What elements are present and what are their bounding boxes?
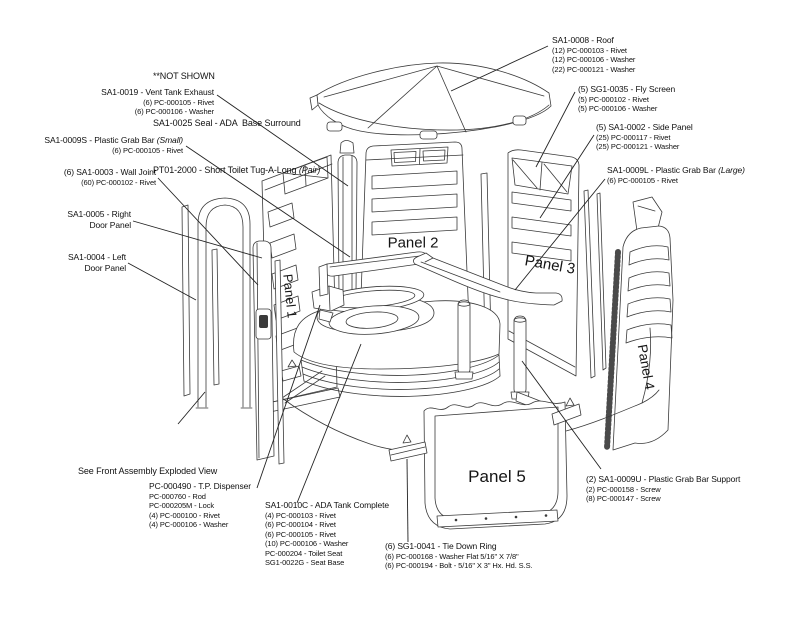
label-fly-screen: (5) SG1-0035 - Fly Screen(5) PC-000102 -…	[578, 84, 675, 114]
label-title: SA1-0008 - Roof	[552, 35, 635, 46]
label-title: SA1-0010C - ADA Tank Complete	[265, 500, 389, 511]
label-title: (5) SA1-0002 - Side Panel	[596, 122, 693, 133]
hardware-line: (6) PC-000104 - Rivet	[265, 520, 389, 530]
label-tp-dispenser: PC-000490 - T.P. DispenserPC-000760 - Ro…	[149, 481, 251, 530]
part-number: SA1-0008 - Roof	[552, 35, 614, 45]
part-number: SA1-0005 - Right	[67, 209, 131, 219]
panel-tag-2: Panel 2	[388, 235, 439, 252]
hardware-line: (6) PC-000105 - Rivet	[265, 530, 389, 540]
label-title: (6) SA1-0003 - Wall Joint	[64, 167, 156, 178]
labels-layer: **NOT SHOWN SA1-0025 Seal - ADA Base Sur…	[0, 0, 802, 620]
part-number: (5) SG1-0035 - Fly Screen	[578, 84, 675, 94]
hardware-line: (25) PC-000117 - Rivet	[596, 133, 693, 143]
label-grab-bar-large: SA1-0009L - Plastic Grab Bar (Large)(6) …	[607, 165, 745, 185]
part-number: (6) SA1-0003 - Wall Joint	[64, 167, 156, 177]
part-number: (6) SG1-0041 - Tie Down Ring	[385, 541, 497, 551]
hardware-line: (6) PC-000105 - Rivet	[101, 98, 214, 108]
part-number: Door Panel	[84, 263, 126, 273]
label-title: Door Panel	[67, 220, 131, 231]
part-number: PC-000490 - T.P. Dispenser	[149, 481, 251, 491]
hardware-line: (4) PC-000100 - Rivet	[149, 511, 251, 521]
hardware-line: (6) PC-000168 - Washer Flat 5/16" X 7/8"	[385, 552, 532, 562]
not-shown-note: **NOT SHOWN SA1-0025 Seal - ADA Base Sur…	[153, 35, 320, 212]
hardware-line: PC-000205M - Lock	[149, 501, 251, 511]
part-number: (5) SA1-0002 - Side Panel	[596, 122, 693, 132]
hardware-line: (5) PC-000106 - Washer	[578, 104, 675, 114]
label-left-door: SA1-0004 - LeftDoor Panel	[68, 252, 126, 273]
label-vent-exhaust: SA1-0019 - Vent Tank Exhaust(6) PC-00010…	[101, 87, 214, 117]
part-number: SA1-0010C - ADA Tank Complete	[265, 500, 389, 510]
part-number: SA1-0025 Seal - ADA Base Surround	[153, 118, 301, 128]
label-title: SA1-0009L - Plastic Grab Bar (Large)	[607, 165, 745, 176]
hardware-line: (6) PC-000105 - Rivet	[44, 146, 183, 156]
not-shown-line: PT01-2000 - Short Toilet Tug-A-Long (Pai…	[153, 165, 320, 176]
part-number: SA1-0009S - Plastic Grab Bar	[44, 135, 156, 145]
panel-tag-5: Panel 5	[468, 467, 526, 487]
exploded-parts-diagram: **NOT SHOWN SA1-0025 Seal - ADA Base Sur…	[0, 0, 802, 620]
label-title: SA1-0004 - Left	[68, 252, 126, 263]
label-title: (2) SA1-0009U - Plastic Grab Bar Support	[586, 474, 740, 485]
part-number: SA1-0019 - Vent Tank Exhaust	[101, 87, 214, 97]
note-text: See Front Assembly Exploded View	[78, 466, 217, 477]
hardware-line: PC-000204 - Toilet Seat	[265, 549, 389, 559]
label-grab-bar-small: SA1-0009S - Plastic Grab Bar (Small)(6) …	[44, 135, 183, 155]
hardware-line: (6) PC-000194 - Bolt - 5/16" X 3" Hx. Hd…	[385, 561, 532, 571]
hardware-line: (5) PC-000102 - Rivet	[578, 95, 675, 105]
part-number: SA1-0004 - Left	[68, 252, 126, 262]
hardware-line: (60) PC-000102 - Rivet	[64, 178, 156, 188]
label-title: SA1-0019 - Vent Tank Exhaust	[101, 87, 214, 98]
hardware-line: PC-000760 - Rod	[149, 492, 251, 502]
label-title: SA1-0009S - Plastic Grab Bar (Small)	[44, 135, 183, 146]
hardware-line: (4) PC-000103 - Rivet	[265, 511, 389, 521]
part-number-italic: (Large)	[718, 165, 745, 175]
hardware-line: (12) PC-000103 - Rivet	[552, 46, 635, 56]
label-roof: SA1-0008 - Roof(12) PC-000103 - Rivet(12…	[552, 35, 635, 74]
hardware-line: (6) PC-000106 - Washer	[101, 107, 214, 117]
label-wall-joint: (6) SA1-0003 - Wall Joint(60) PC-000102 …	[64, 167, 156, 187]
part-number-italic: (Pair)	[299, 165, 320, 175]
label-side-panel: (5) SA1-0002 - Side Panel(25) PC-000117 …	[596, 122, 693, 152]
hardware-line: SG1-0022G - Seat Base	[265, 558, 389, 568]
panel-tag-3: Panel 3	[523, 252, 576, 278]
panel-tag-4: Panel 4	[635, 343, 658, 391]
part-number-italic: (Small)	[157, 135, 183, 145]
label-title: Door Panel	[68, 263, 126, 274]
hardware-line: (4) PC-000106 - Washer	[149, 520, 251, 530]
hardware-line: (2) PC-000158 - Screw	[586, 485, 740, 495]
hardware-line: (8) PC-000147 - Screw	[586, 494, 740, 504]
hardware-line: (12) PC-000106 - Washer	[552, 55, 635, 65]
part-number: SA1-0009L - Plastic Grab Bar	[607, 165, 718, 175]
label-right-door: SA1-0005 - RightDoor Panel	[67, 209, 131, 230]
part-number: Door Panel	[89, 220, 131, 230]
label-grab-bar-support: (2) SA1-0009U - Plastic Grab Bar Support…	[586, 474, 740, 504]
panel-tag-1: Panel 1	[280, 273, 300, 318]
label-title: SA1-0005 - Right	[67, 209, 131, 220]
label-tie-down-ring: (6) SG1-0041 - Tie Down Ring(6) PC-00016…	[385, 541, 532, 571]
part-number: PT01-2000 - Short Toilet Tug-A-Long	[153, 165, 299, 175]
label-title: PC-000490 - T.P. Dispenser	[149, 481, 251, 492]
label-title: (6) SG1-0041 - Tie Down Ring	[385, 541, 532, 552]
not-shown-line: SA1-0025 Seal - ADA Base Surround	[153, 118, 320, 129]
label-title: (5) SG1-0035 - Fly Screen	[578, 84, 675, 95]
label-ada-tank: SA1-0010C - ADA Tank Complete(4) PC-0001…	[265, 500, 389, 568]
hardware-line: (22) PC-000121 - Washer	[552, 65, 635, 75]
not-shown-header: **NOT SHOWN	[153, 71, 320, 82]
part-number: (2) SA1-0009U - Plastic Grab Bar Support	[586, 474, 740, 484]
hardware-line: (6) PC-000105 - Rivet	[607, 176, 745, 186]
hardware-line: (25) PC-000121 - Washer	[596, 142, 693, 152]
hardware-line: (10) PC-000106 - Washer	[265, 539, 389, 549]
